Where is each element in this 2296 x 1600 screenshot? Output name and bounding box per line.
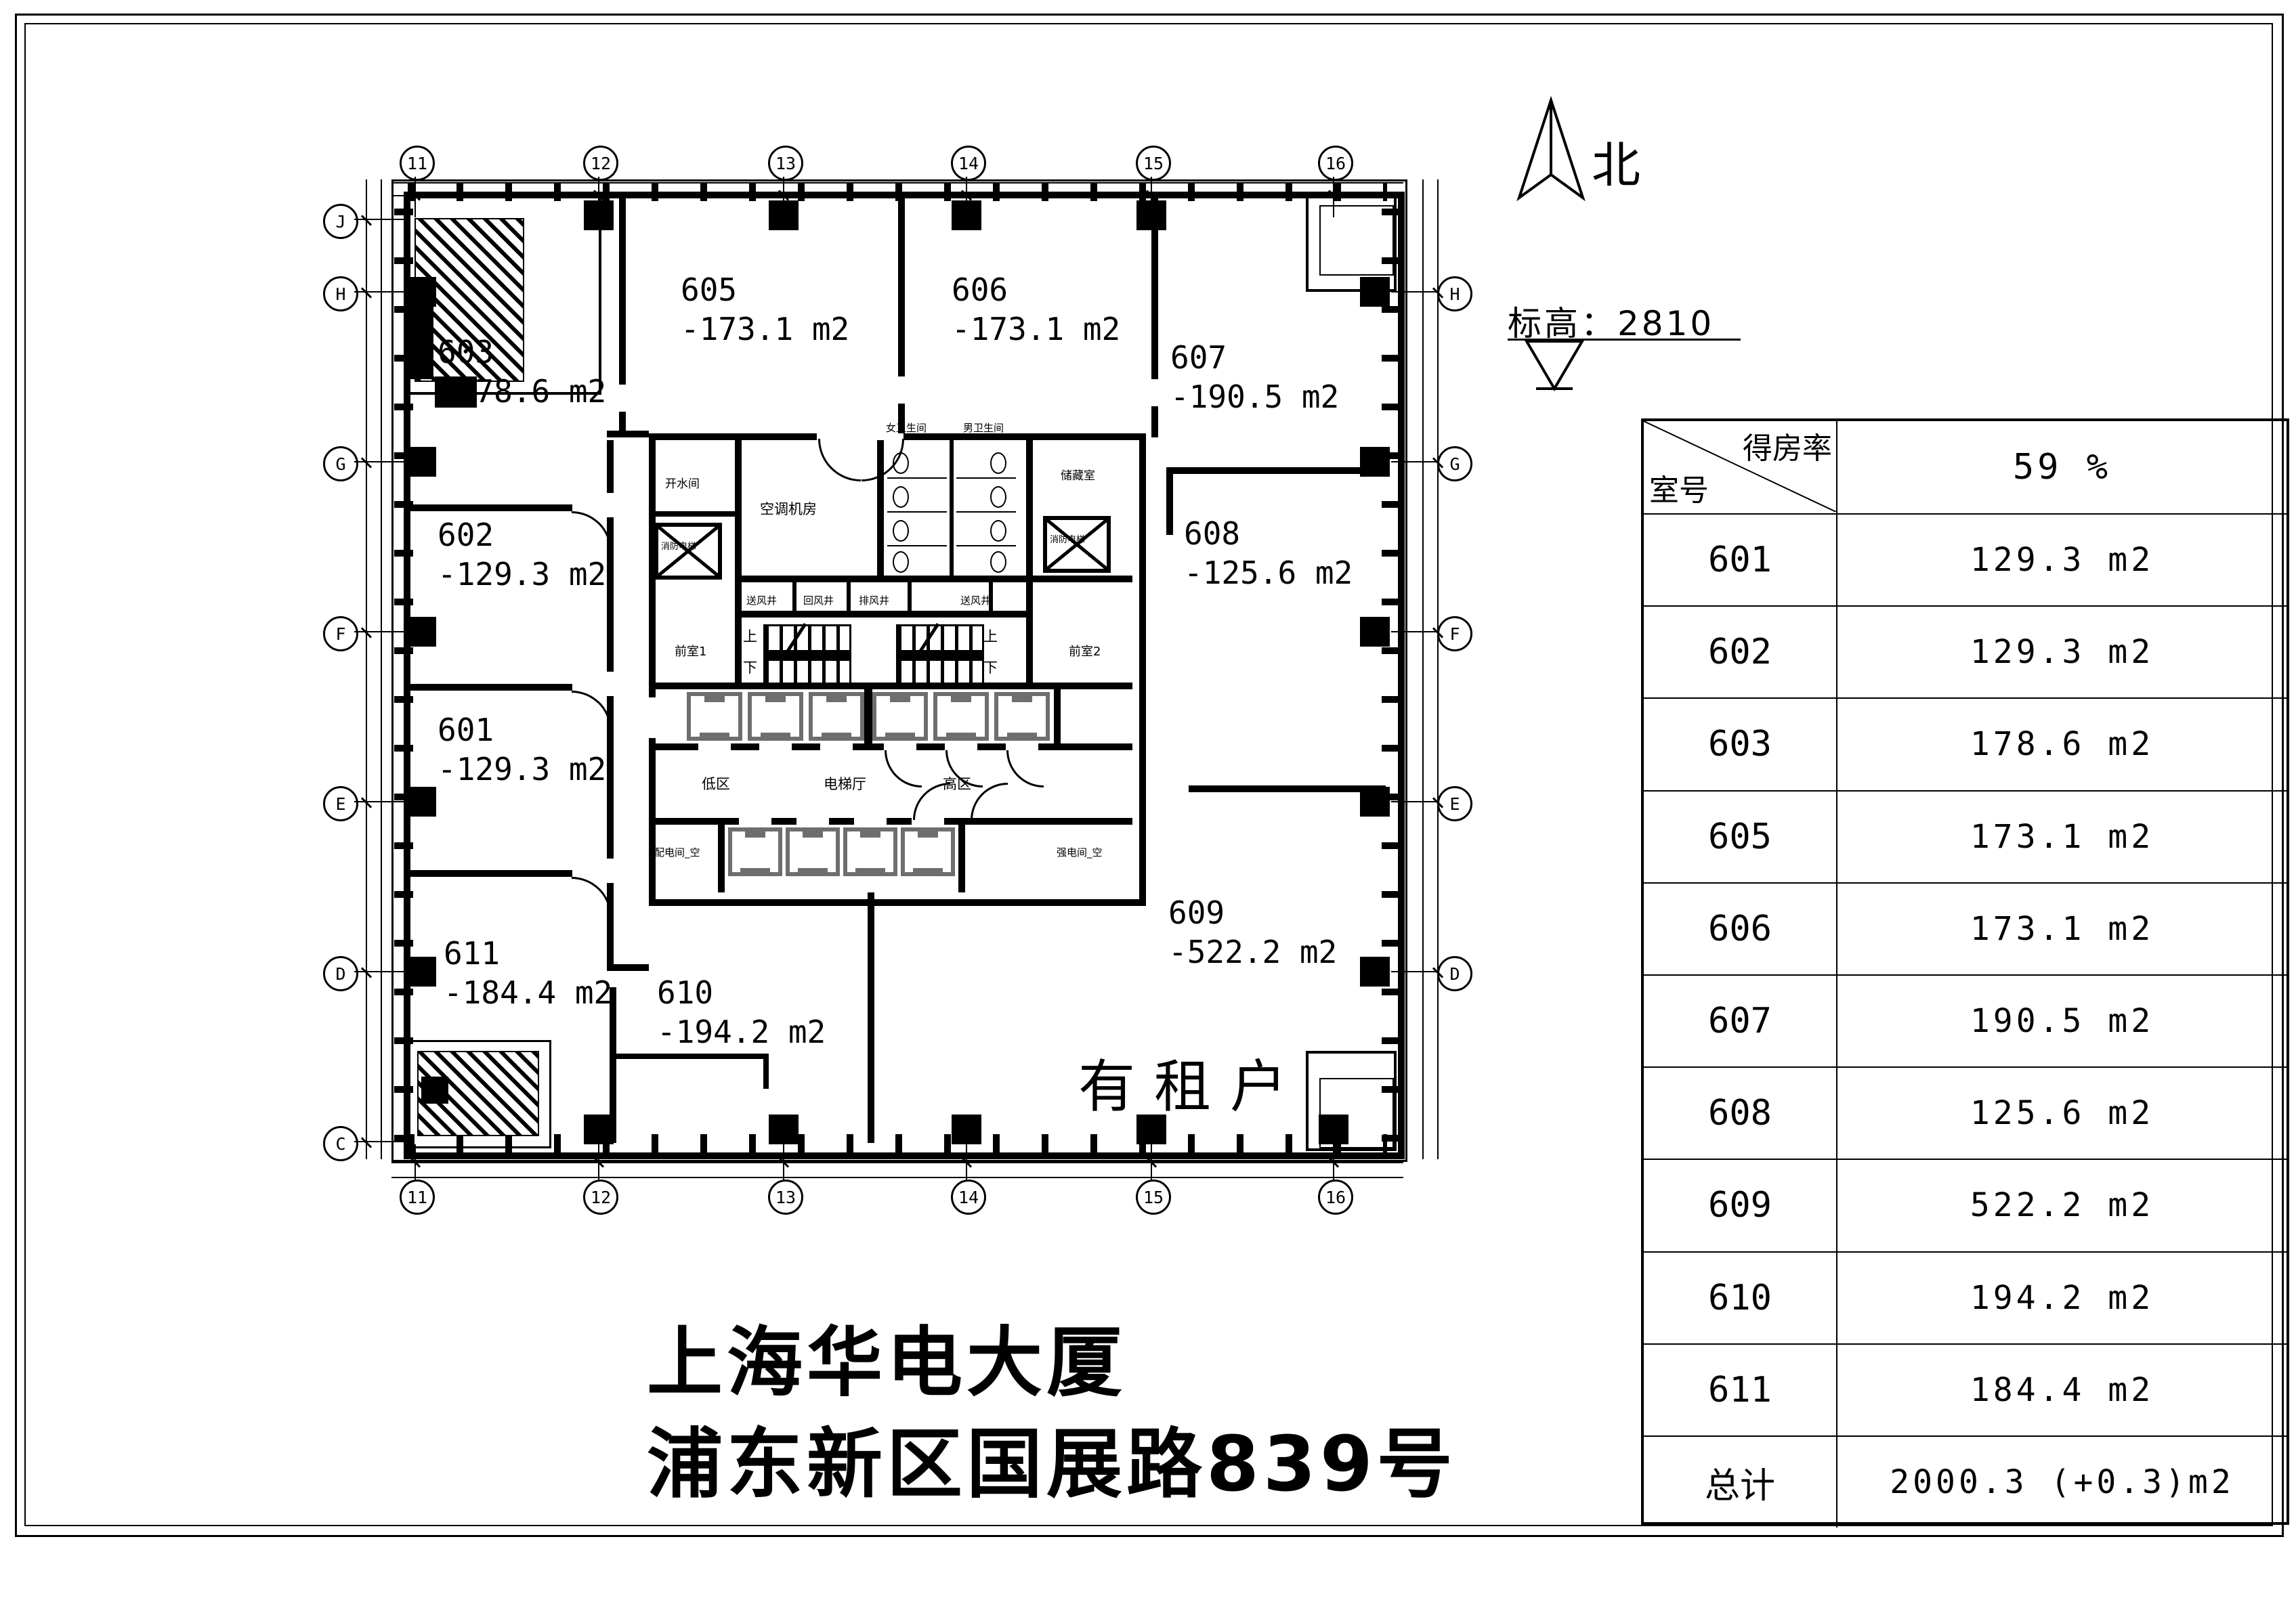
table-row: 611184.4 m2 — [1644, 1343, 2287, 1435]
grid-bubble: 11 — [400, 146, 435, 181]
table-cell-room: 606 — [1644, 884, 1837, 974]
grid-bubble: H — [323, 276, 358, 311]
table-header-diagonal-cell: 得房率 室号 — [1644, 421, 1837, 513]
table-cell-area: 178.6 m2 — [1837, 699, 2287, 790]
structural-column — [1360, 787, 1390, 817]
partition — [1189, 785, 1386, 792]
table-cell-area: 522.2 m2 — [1837, 1160, 2287, 1251]
dimension-line — [1437, 179, 1439, 1159]
dimension-line — [366, 179, 367, 1159]
grid-bubble: 15 — [1136, 146, 1171, 181]
grid-bubble: E — [323, 786, 358, 821]
toilet-fixture — [990, 486, 1006, 508]
dimension-line — [1422, 179, 1424, 1159]
core-label: 下 — [743, 657, 757, 677]
window-mullions-right — [1382, 196, 1401, 1142]
table-row: 605173.1 m2 — [1644, 790, 2287, 882]
structural-column — [1360, 447, 1390, 477]
structural-column — [1319, 1115, 1348, 1144]
room-label-605: 605 -173.1 m2 — [681, 271, 849, 349]
grid-bubble: 15 — [1136, 1180, 1171, 1215]
elevator-car — [901, 827, 955, 876]
core-label: 回风井 — [803, 593, 834, 607]
table-row: 603178.6 m2 — [1644, 697, 2287, 790]
table-cell-area: 129.3 m2 — [1837, 607, 2287, 697]
structural-column — [1360, 957, 1390, 987]
core-label: 前室2 — [1069, 642, 1101, 660]
drawing-sheet: { "sheet": { "title_line1": "上海华电大厦", "t… — [0, 0, 2296, 1600]
table-cell-room: 609 — [1644, 1160, 1837, 1251]
grid-bubble: J — [323, 204, 358, 239]
elevator-car — [843, 827, 897, 876]
partition — [1151, 406, 1158, 437]
area-table: 得房率 室号 59 % 601129.3 m2602129.3 m2603178… — [1641, 418, 2289, 1525]
shaft-wall — [908, 582, 912, 618]
sheet-title-line1: 上海华电大厦 — [647, 1301, 1126, 1411]
grid-bubble: G — [1437, 446, 1472, 481]
table-cell-area: 129.3 m2 — [1837, 515, 2287, 605]
core-wall — [950, 440, 954, 576]
core-label: 上 — [983, 626, 998, 646]
table-cell-area: 184.4 m2 — [1837, 1345, 2287, 1435]
room-label-611: 611 -184.4 m2 — [444, 934, 612, 1012]
grid-bubble: 12 — [583, 1180, 618, 1215]
north-arrow-icon — [1507, 95, 1595, 210]
room-label-607: 607 -190.5 m2 — [1170, 339, 1339, 416]
table-cell-area: 173.1 m2 — [1837, 884, 2287, 974]
partition — [763, 1054, 769, 1089]
table-cell-area: 2000.3 (+0.3)m2 — [1837, 1437, 2287, 1528]
grid-stem — [1391, 631, 1437, 632]
core-label: 空调机房 — [760, 498, 817, 519]
structural-column — [406, 277, 436, 307]
room-label-609: 609 -522.2 m2 — [1168, 894, 1337, 972]
toilet-fixture — [990, 551, 1006, 573]
core-label: 前室1 — [675, 642, 706, 660]
grid-bubble: E — [1437, 786, 1472, 821]
core-wall — [649, 511, 735, 517]
stair-east — [896, 624, 984, 687]
corridor-spine — [607, 440, 614, 493]
table-cell-room: 605 — [1644, 792, 1837, 882]
header-diag-bottom: 室号 — [1649, 466, 1709, 509]
core-label: 送风井 — [960, 593, 991, 607]
grid-bubble: H — [1437, 276, 1472, 311]
room-label-606: 606 -173.1 m2 — [952, 271, 1120, 349]
table-row: 610194.2 m2 — [1644, 1251, 2287, 1343]
table-row: 总计2000.3 (+0.3)m2 — [1644, 1435, 2287, 1528]
partition — [607, 964, 649, 971]
grid-bubble: F — [323, 616, 358, 651]
structural-column — [584, 1115, 614, 1144]
core-label: 高区 — [943, 773, 971, 794]
dimension-line — [391, 182, 1403, 183]
table-row: 608125.6 m2 — [1644, 1066, 2287, 1159]
core-label: 下 — [983, 657, 998, 677]
structural-column — [1360, 277, 1390, 307]
partition — [607, 431, 649, 437]
toilet-fixture — [893, 520, 909, 542]
table-cell-room: 607 — [1644, 976, 1837, 1066]
core-label: 男卫生间 — [963, 420, 1004, 435]
toilet-fixture — [893, 551, 909, 573]
shaft-wall — [792, 582, 796, 618]
core-label: 配电间_空 — [654, 845, 700, 859]
grid-bubble: 12 — [583, 146, 618, 181]
structural-column — [952, 1115, 981, 1144]
toilet-fixture — [990, 452, 1006, 474]
grid-bubble: 14 — [951, 1180, 986, 1215]
partition — [613, 1054, 769, 1059]
table-header-value: 59 % — [1837, 421, 2287, 513]
structural-column — [406, 617, 436, 647]
core-wall — [1026, 433, 1033, 683]
core-label: 上 — [743, 626, 757, 646]
shaft-wall — [847, 582, 851, 618]
room-label-603: 603 -178.6 m2 — [438, 333, 606, 411]
partition — [619, 192, 626, 385]
core-label: 排风井 — [859, 593, 889, 607]
grid-bubble: 16 — [1318, 1180, 1353, 1215]
grid-stem — [1391, 461, 1437, 462]
grid-bubble: 16 — [1318, 146, 1353, 181]
core-label: 低区 — [702, 773, 730, 794]
table-row: 602129.3 m2 — [1644, 605, 2287, 697]
core-label: 电梯厅 — [824, 773, 866, 794]
structural-column — [406, 447, 436, 477]
partition — [868, 892, 874, 1143]
grid-stem — [1391, 971, 1437, 972]
grid-bubble: D — [323, 956, 358, 991]
core-wall — [864, 683, 872, 750]
table-row: 609522.2 m2 — [1644, 1159, 2287, 1251]
core-wall — [735, 611, 1026, 618]
table-cell-room: 601 — [1644, 515, 1837, 605]
elevator-car — [748, 692, 803, 741]
table-cell-room: 总计 — [1644, 1437, 1837, 1528]
room-label-602: 602 -129.3 m2 — [438, 516, 606, 594]
partition — [1166, 467, 1173, 535]
grid-bubble: C — [323, 1126, 358, 1161]
structural-column — [406, 957, 436, 987]
toilet-fixture — [893, 486, 909, 508]
core-label: 消防电梯 — [661, 539, 696, 552]
grid-bubble: 14 — [951, 146, 986, 181]
north-label: 北 — [1592, 125, 1640, 196]
structural-column — [769, 1115, 799, 1144]
grid-bubble: F — [1437, 616, 1472, 651]
grid-bubble: 13 — [768, 1180, 803, 1215]
elevator-car — [933, 692, 989, 741]
core-wall — [735, 433, 742, 683]
grid-bubble: 13 — [768, 146, 803, 181]
dimension-line — [391, 1177, 1403, 1178]
core-label: 开水间 — [665, 474, 700, 491]
wall-block — [421, 1077, 448, 1104]
core-wall — [735, 576, 1132, 582]
elevator-car — [872, 692, 928, 741]
table-row: 601129.3 m2 — [1644, 513, 2287, 605]
window-mullions-bottom — [408, 1134, 1387, 1153]
partition — [409, 684, 572, 691]
core-label: 强电间_空 — [1057, 845, 1103, 859]
dimension-line — [391, 1162, 1403, 1163]
core-label: 储藏室 — [1061, 466, 1095, 483]
table-cell-area: 194.2 m2 — [1837, 1253, 2287, 1343]
core-wall — [718, 818, 725, 892]
table-cell-room: 610 — [1644, 1253, 1837, 1343]
table-cell-area: 190.5 m2 — [1837, 976, 2287, 1066]
toilet-fixture — [990, 520, 1006, 542]
core-label: 女卫生间 — [886, 420, 927, 435]
table-cell-area: 125.6 m2 — [1837, 1068, 2287, 1159]
core-wall — [649, 683, 1132, 689]
partition — [409, 504, 572, 511]
table-row: 606173.1 m2 — [1644, 882, 2287, 974]
sheet-title-line2: 浦东新区国展路839号 — [647, 1403, 1457, 1513]
elevator-car — [728, 827, 782, 876]
corner-step-top-right-inner — [1319, 205, 1394, 276]
elevator-car — [687, 692, 742, 741]
elevator-car — [994, 692, 1050, 741]
table-cell-room: 608 — [1644, 1068, 1837, 1159]
structural-column — [406, 787, 436, 817]
core-wall — [958, 818, 965, 892]
partition — [1172, 467, 1386, 474]
table-cell-room: 602 — [1644, 607, 1837, 697]
grid-stem — [1391, 801, 1437, 802]
grid-bubble: G — [323, 446, 358, 481]
elevation-symbol-icon — [1523, 340, 1586, 397]
header-diag-top: 得房率 — [1743, 424, 1832, 467]
elevator-car — [786, 827, 840, 876]
table-row: 607190.5 m2 — [1644, 974, 2287, 1066]
tenant-note: 有租户 — [1078, 1041, 1306, 1123]
structural-column — [1360, 617, 1390, 647]
dimension-line — [381, 179, 382, 1159]
grid-stem — [1391, 291, 1437, 293]
grid-bubble: 11 — [400, 1180, 435, 1215]
core-label: 送风井 — [746, 593, 777, 607]
table-cell-room: 611 — [1644, 1345, 1837, 1435]
core-label: 消防电梯 — [1050, 532, 1085, 545]
dimension-line — [391, 195, 1403, 196]
room-label-601: 601 -129.3 m2 — [438, 711, 606, 789]
partition — [898, 192, 905, 376]
partition — [409, 870, 572, 877]
elevator-car — [809, 692, 864, 741]
wall-block — [405, 298, 433, 379]
grid-bubble: D — [1437, 956, 1472, 991]
table-cell-room: 603 — [1644, 699, 1837, 790]
stair-west — [763, 624, 851, 687]
core-wall — [1054, 689, 1061, 750]
room-label-608: 608 -125.6 m2 — [1184, 515, 1353, 592]
room-label-610: 610 -194.2 m2 — [657, 974, 826, 1052]
table-cell-area: 173.1 m2 — [1837, 792, 2287, 882]
table-header-row: 得房率 室号 59 % — [1644, 421, 2287, 513]
